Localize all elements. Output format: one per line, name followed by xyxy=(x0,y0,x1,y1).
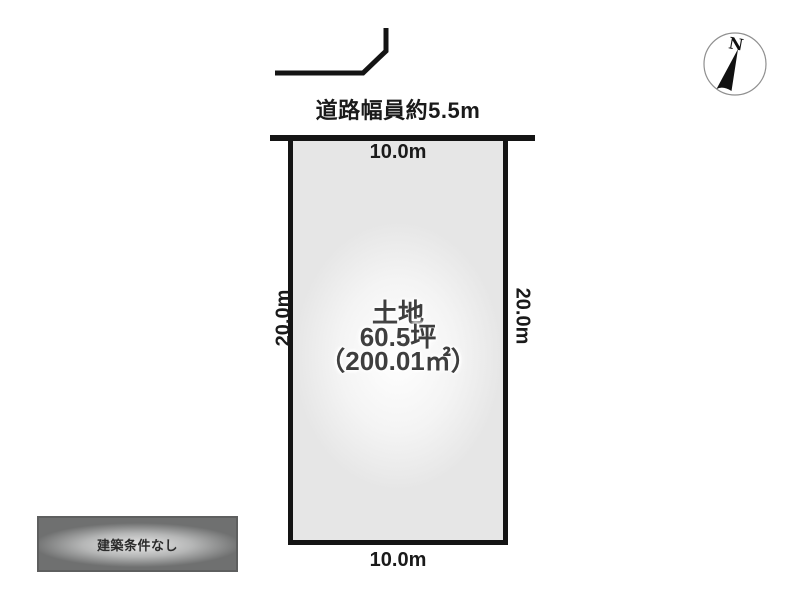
road-boundary-polyline xyxy=(275,28,386,73)
north-needle-icon xyxy=(717,49,739,91)
building-condition-label: 建築条件なし xyxy=(97,535,178,554)
dimension-bottom: 10.0m xyxy=(288,549,508,572)
plot-area-text: 土地 60.5坪 （200.01㎡） xyxy=(288,301,508,373)
road-width-label: 道路幅員約5.5m xyxy=(268,93,528,125)
dimension-top: 10.0m xyxy=(288,141,508,164)
land-plot-diagram: N 道路幅員約5.5m 10.0m 10.0m 20.0m 20.0m 土地 6… xyxy=(0,0,800,600)
building-condition-badge: 建築条件なし xyxy=(37,516,238,572)
plot-sqm-label: （200.01㎡） xyxy=(288,349,508,373)
dimension-right: 20.0m xyxy=(511,288,534,345)
compass-north-label: N xyxy=(727,33,745,54)
